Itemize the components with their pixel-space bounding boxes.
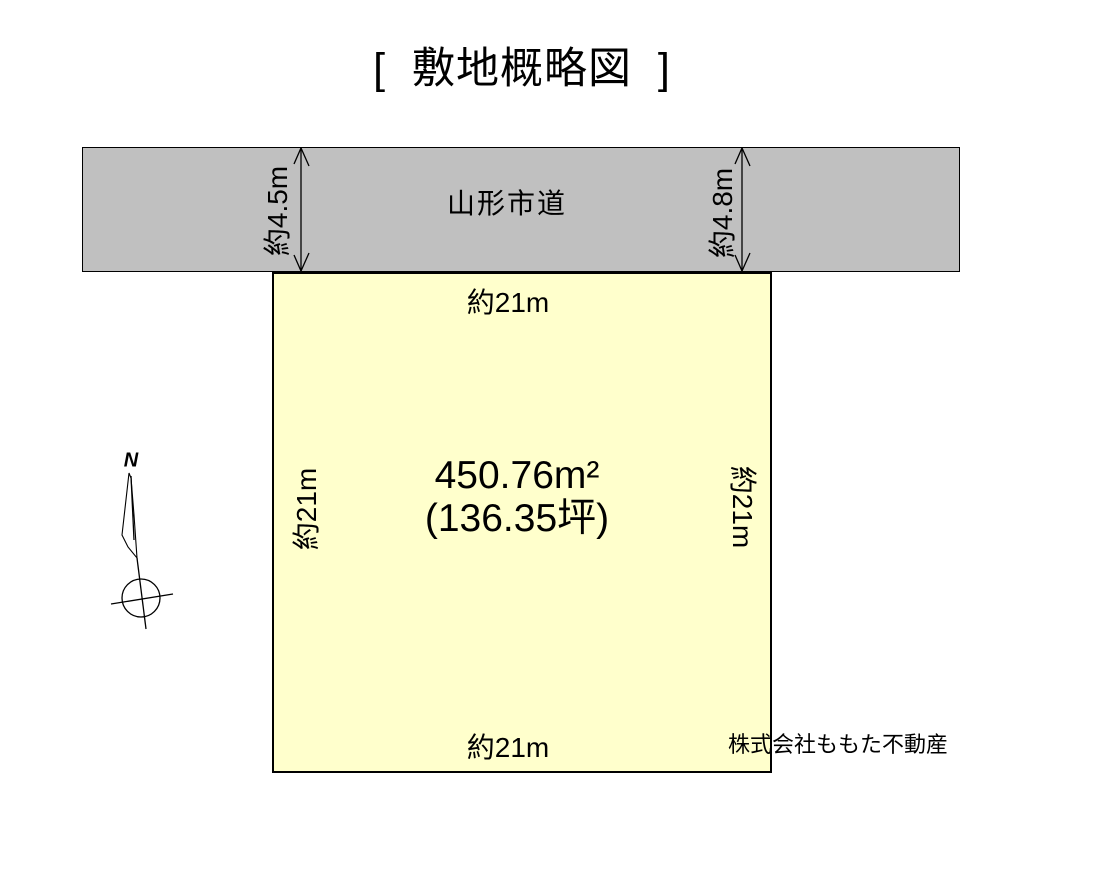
plot-area-block: 450.76m² (136.35坪): [425, 454, 609, 540]
plot-bottom-dimension-label: 約21m: [467, 726, 549, 766]
north-arrow-icon: [111, 473, 173, 629]
plot-area-tsubo: (136.35坪): [425, 497, 609, 540]
road-left-width-label: 約4.5m: [256, 166, 296, 256]
plot-left-dimension-label: 約21m: [285, 468, 325, 550]
plot-top-dimension-label: 約21m: [467, 281, 549, 321]
company-credit: 株式会社ももた不動産: [728, 727, 948, 759]
road-right-width-label: 約4.8m: [701, 168, 741, 258]
plot-area-m2: 450.76m²: [425, 454, 609, 497]
compass-north-label: N: [124, 450, 138, 473]
plot-right-dimension-label: 約21m: [724, 466, 764, 548]
page-title: [ 敷地概略図 ]: [0, 44, 1044, 94]
site-plan-canvas: [ 敷地概略図 ] 山形市道 約4.5m 約4.8m 約21m 約21m 約21…: [0, 0, 1095, 882]
road-label: 山形市道: [447, 182, 567, 222]
